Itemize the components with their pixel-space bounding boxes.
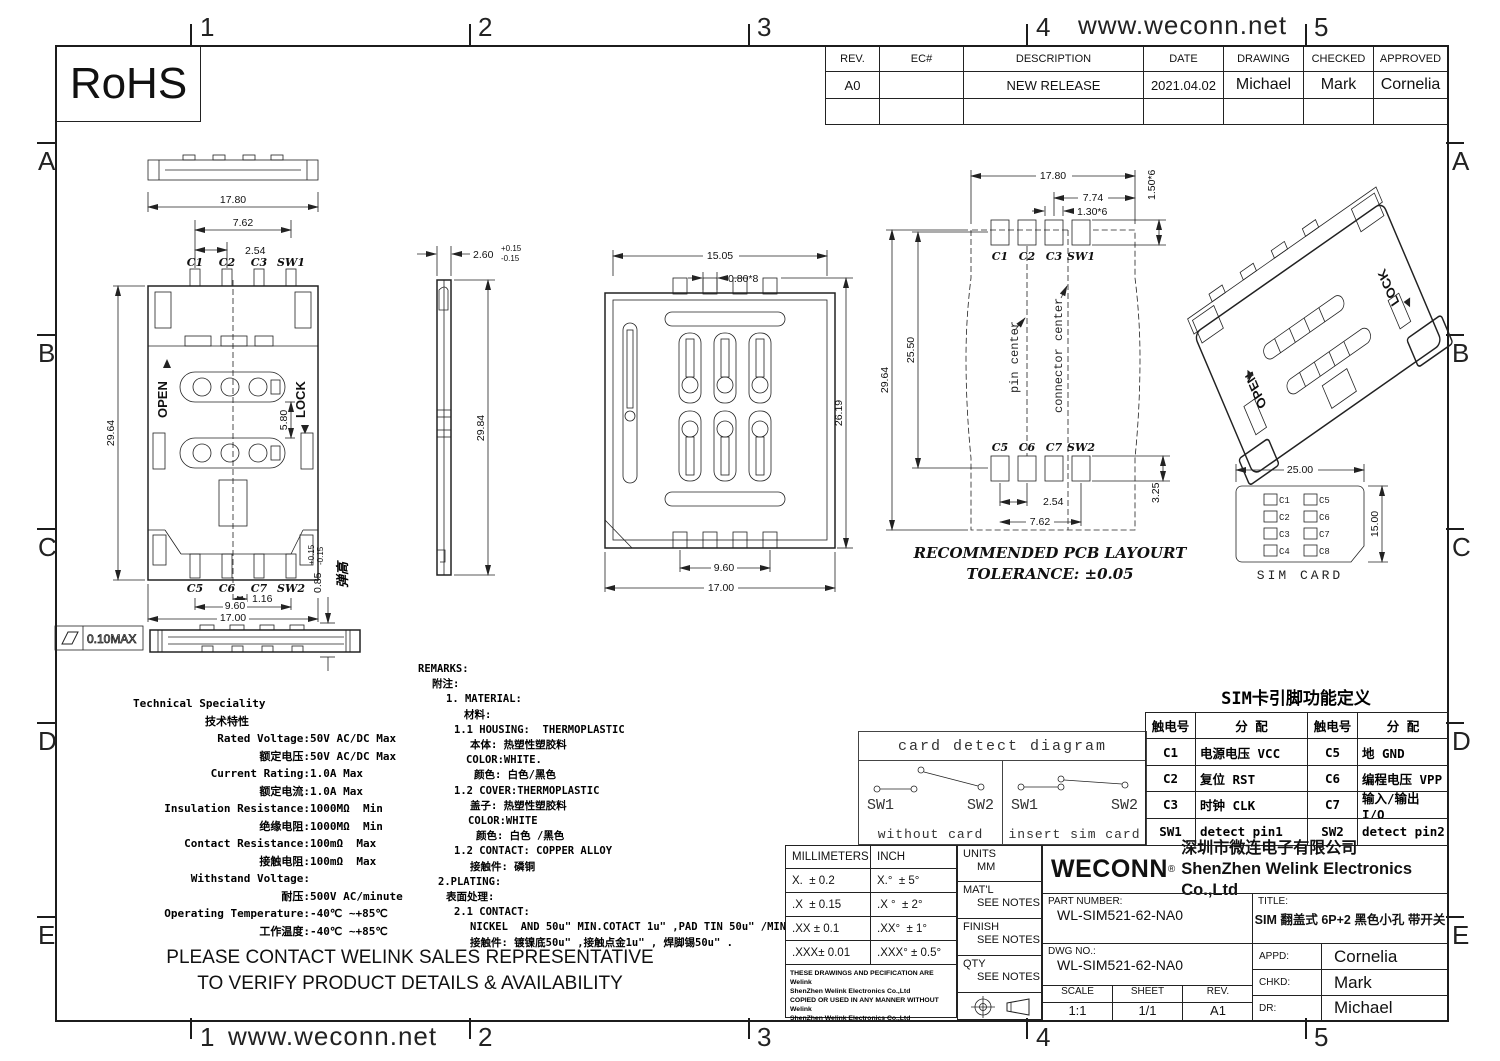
- tick: [1026, 1018, 1028, 1039]
- weconn-url-top: www.weconn.net: [1078, 10, 1287, 41]
- rev-cell: Mark: [1304, 72, 1374, 99]
- spring-tol-plus: +0.15: [307, 544, 316, 565]
- pad-label: C7: [1319, 530, 1330, 540]
- pin-cell: C6: [1308, 766, 1358, 792]
- pin-center-label: pin center: [1008, 321, 1022, 393]
- plan-body: [148, 269, 318, 590]
- weconn-logo: WECONN: [1051, 855, 1168, 884]
- tech-label: 耐压:: [125, 888, 310, 906]
- tech-value: 50V AC/DC Max: [310, 730, 396, 748]
- tick: [1446, 528, 1464, 530]
- pad-label: C8: [1319, 547, 1330, 557]
- sw1-label: SW1: [1011, 797, 1038, 814]
- finish-label: FINISH: [963, 921, 1041, 933]
- tol-cell: .XX ± 0.1: [785, 917, 870, 941]
- rev-h: APPROVED: [1374, 47, 1447, 72]
- simcard-caption: SIM CARD: [1257, 568, 1343, 583]
- pad-label: C2: [1279, 513, 1290, 523]
- tol-cell: .XX° ± 1°: [870, 917, 957, 941]
- tick: [37, 528, 55, 530]
- tick: [469, 24, 471, 45]
- company-block: WECONN ® 深圳市微连电子有限公司 ShenZhen Welink Ele…: [1042, 845, 1447, 893]
- rev-cell: A0: [826, 72, 880, 99]
- switch-open-icon: [859, 761, 1002, 797]
- dr-label: DR:: [1253, 996, 1322, 1020]
- remark-line: NICKEL AND 50u" MIN.COTACT 1u" ,PAD TIN …: [418, 920, 718, 935]
- tech-label: Insulation Resistance:: [125, 800, 310, 818]
- dim: 7.74: [1083, 192, 1104, 204]
- bottom-body: [605, 278, 835, 548]
- tech-value: 1000MΩ Min: [310, 800, 383, 818]
- units-column: UNITS MM MAT'L SEE NOTES FINISH SEE NOTE…: [957, 845, 1042, 1020]
- rev-h: CHECKED: [1304, 47, 1374, 72]
- pad-label: C3: [1046, 250, 1063, 263]
- pin-cell: 编程电压 VPP: [1358, 766, 1448, 792]
- tech-value: -40℃ ~+85℃: [310, 923, 388, 941]
- lock-label: LOCK: [293, 381, 308, 418]
- tech-label: Rated Voltage:: [125, 730, 310, 748]
- drawing-sheet: 1 2 3 4 5 www.weconn.net 1 2 3 4 5 www.w…: [0, 0, 1500, 1061]
- tick: [1446, 916, 1464, 918]
- grid-col-3: 3: [757, 12, 771, 43]
- tol-cell: .X ° ± 2°: [870, 893, 957, 917]
- profile-body: [150, 625, 360, 652]
- view-pcb: C1 C2 C3 SW1 C5 C6 C7 SW2 pin center con…: [878, 158, 1183, 583]
- scale-label: SCALE: [1043, 986, 1113, 1002]
- legal-line: THESE DRAWINGS AND PECIFICATION ARE Weli…: [790, 969, 954, 987]
- grid-col-5: 5: [1314, 12, 1328, 43]
- pin-function-table: 触电号 分 配 触电号 分 配 C1 电源电压 VCC C5 地 GND C2 …: [1145, 712, 1449, 846]
- ssr-values: 1:1 1/1 A1: [1042, 1002, 1252, 1020]
- dim: 1.30*6: [1077, 206, 1108, 218]
- grid-col-1b: 1: [200, 1022, 214, 1053]
- remark-line: COLOR:WHITE: [418, 814, 718, 829]
- tick: [37, 722, 55, 724]
- pcb-center-labels: pin center connector center: [1008, 286, 1067, 413]
- tol-minus: -0.15: [501, 254, 520, 263]
- simcard-dims: 25.00 15.00: [1236, 463, 1388, 562]
- tol-cell: .X ± 0.15: [785, 893, 870, 917]
- rev-h: DRAWING: [1224, 47, 1304, 72]
- grid-col-3b: 3: [757, 1022, 771, 1053]
- appd-value: Cornelia: [1322, 947, 1397, 967]
- tol-h: INCH: [870, 845, 957, 869]
- sw1-label: SW1: [867, 797, 894, 814]
- remark-line: 表面处理:: [418, 890, 718, 905]
- pin-label: C3: [251, 256, 268, 269]
- view-profile: 0.10MAX 0.85 +0.15 -0.15 弹高: [50, 553, 370, 673]
- finish-value: SEE NOTES: [963, 933, 1041, 946]
- pin-cell: C3: [1146, 792, 1196, 818]
- tech-value: 100mΩ Max: [310, 835, 376, 853]
- appd-label: APPD:: [1253, 944, 1322, 969]
- card-detect-title: card detect diagram: [859, 732, 1146, 761]
- units-label: UNITS: [963, 848, 1041, 860]
- tech-value: 100mΩ Max: [310, 853, 376, 871]
- bottom-dims-top: 15.05 0.80*8: [613, 249, 827, 290]
- remark-line: 材料:: [418, 708, 718, 723]
- pcb-pads-top: C1 C2 C3 SW1: [991, 220, 1095, 263]
- pin-cell: 电源电压 VCC: [1196, 739, 1308, 765]
- rev-cell: Cornelia: [1374, 72, 1447, 99]
- plan-top-strip: [148, 155, 318, 180]
- dwg-no-label: DWG NO.:: [1043, 944, 1252, 957]
- tech-label: Operating Temperature:: [125, 905, 310, 923]
- pad-label: C3: [1279, 530, 1290, 540]
- view-side: 2.60 +0.15 -0.15 29.84: [400, 218, 560, 593]
- view-simcard: 25.00 15.00 C1 C2 C3 C4 C5 C6 C7 C8 SIM …: [1212, 448, 1407, 583]
- tech-label: Current Rating:: [125, 765, 310, 783]
- view-isometric: OPEN LOCK: [1160, 138, 1450, 438]
- grid-row-C2: C: [1452, 532, 1471, 563]
- pad-label: SW1: [1067, 250, 1095, 263]
- grid-row-A2: A: [1452, 146, 1469, 177]
- pin-cell: C1: [1146, 739, 1196, 765]
- card-detect-without: SW1SW2 without card: [859, 761, 1003, 844]
- bottom-dim-length: 26.19: [781, 278, 853, 548]
- pin-table-title: SIM卡引脚功能定义: [1145, 684, 1447, 709]
- tolerance-table: MILLIMETERS INCH X. ± 0.2 X.° ± 5° .X ± …: [785, 845, 957, 965]
- dim: 5.80: [278, 410, 290, 431]
- tech-label: 额定电流:: [125, 783, 310, 801]
- dim: 25.00: [1287, 464, 1313, 476]
- tick: [37, 916, 55, 918]
- pad-label: C6: [1019, 441, 1036, 454]
- dim: 29.64: [105, 420, 117, 446]
- plan-dim-height: 29.64: [105, 286, 145, 580]
- tick: [190, 24, 192, 45]
- pcb-pads-bottom: C5 C6 C7 SW2: [991, 441, 1095, 481]
- dim: 25.50: [905, 337, 917, 363]
- chkd-row: CHKD: Mark: [1252, 969, 1447, 995]
- title-cell: TITLE: SIM 翻盖式 6P+2 黑色小孔 带开关: [1252, 893, 1447, 943]
- pin-label: C1: [187, 256, 203, 269]
- legal-line: ShenZhen Welink Electronics Co.,Ltd: [790, 1014, 954, 1023]
- revision-table: REV. EC# DESCRIPTION DATE DRAWING CHECKE…: [825, 47, 1447, 125]
- part-number-cell: PART NUMBER: WL-SIM521-62-NA0: [1042, 893, 1252, 943]
- dr-row: DR: Michael: [1252, 995, 1447, 1020]
- pin-cell: 复位 RST: [1196, 766, 1308, 792]
- pad-label: C1: [1279, 496, 1290, 506]
- grid-col-2b: 2: [478, 1022, 492, 1053]
- open-label: OPEN: [155, 381, 170, 418]
- matl-cell: MAT'L SEE NOTES: [957, 882, 1042, 919]
- qty-cell: QTY SEE NOTES: [957, 956, 1042, 993]
- rev-label: REV.: [1183, 986, 1253, 1002]
- tech-label: Contact Resistance:: [125, 835, 310, 853]
- remarks-block: REMARKS: 附注: 1. MATERIAL: 材料: 1.1 HOUSIN…: [418, 662, 718, 951]
- contact-line-1: PLEASE CONTACT WELINK SALES REPRESENTATI…: [160, 945, 660, 971]
- pad-label: SW2: [1067, 441, 1095, 454]
- grid-row-B2: B: [1452, 338, 1469, 369]
- rev-cell: [880, 72, 964, 99]
- pcb-dims: 17.80 7.74 1.30*6 1.50*6 29.64 25.50 2.5…: [879, 169, 1170, 530]
- legal-line: ShenZhen Welink Electronics Co.,Ltd: [790, 987, 954, 996]
- pin-label: SW1: [277, 256, 305, 269]
- pin-h: 分 配: [1196, 713, 1308, 739]
- dim: 17.00: [708, 582, 734, 594]
- units-value: MM: [963, 860, 1041, 873]
- pin-cell: C2: [1146, 766, 1196, 792]
- legal-text: THESE DRAWINGS AND PECIFICATION ARE Weli…: [785, 965, 957, 1018]
- third-angle-projection-icon: [967, 996, 1037, 1018]
- sw2-label: SW2: [1111, 797, 1138, 814]
- side-body: [437, 280, 451, 575]
- tol-h: MILLIMETERS: [785, 845, 870, 869]
- tick: [1026, 24, 1028, 45]
- connector-center-label: connector center: [1052, 298, 1066, 413]
- dim: 0.80*8: [728, 273, 759, 285]
- company-name-cn: 深圳市微连电子有限公司: [1181, 838, 1447, 859]
- pad-label: C5: [992, 441, 1008, 454]
- spring-label: 弹高: [335, 560, 351, 588]
- pcb-note-2: TOLERANCE: ±0.05: [966, 565, 1133, 583]
- units-cell: UNITS MM: [957, 845, 1042, 882]
- tech-value: 500V AC/minute: [310, 888, 403, 906]
- switch-closed-icon: [1003, 761, 1147, 797]
- open-arrow-icon: [163, 359, 171, 368]
- tech-value: 1.0A Max: [310, 765, 363, 783]
- tick: [748, 1018, 750, 1039]
- dim: 7.62: [233, 217, 254, 229]
- contact-line-2: TO VERIFY PRODUCT DETAILS & AVAILABILITY: [160, 971, 660, 997]
- remark-line: 1.2 COVER:THERMOPLASTIC: [418, 784, 718, 799]
- plan-pin-labels-top: C1 C2 C3 SW1: [187, 256, 305, 269]
- dim: 15.00: [1369, 511, 1381, 537]
- tech-label: Withstand Voltage:: [125, 870, 310, 888]
- pin-h: 分 配: [1358, 713, 1448, 739]
- sw2-label: SW2: [967, 797, 994, 814]
- rev-cell: 2021.04.02: [1144, 72, 1224, 99]
- grid-row-B: B: [38, 338, 55, 369]
- grid-col-2: 2: [478, 12, 492, 43]
- remark-line: 颜色: 白色/黑色: [418, 768, 718, 783]
- chkd-label: CHKD:: [1253, 970, 1322, 995]
- rev-h: DESCRIPTION: [964, 47, 1144, 72]
- rev-h: EC#: [880, 47, 964, 72]
- scale-value: 1:1: [1043, 1003, 1113, 1020]
- tick: [748, 24, 750, 45]
- dim: 15.05: [707, 250, 733, 262]
- dim: 7.62: [1030, 516, 1051, 528]
- remark-line: 2.1 CONTACT:: [418, 905, 718, 920]
- tech-value: 50V AC/DC Max: [310, 748, 396, 766]
- dim: 2.54: [1043, 496, 1064, 508]
- tick: [1305, 24, 1307, 45]
- grid-row-E: E: [38, 920, 55, 951]
- spring-height: 0.85: [312, 572, 324, 593]
- registered-icon: ®: [1168, 864, 1175, 875]
- side-dim-thickness: 2.60 +0.15 -0.15: [417, 244, 522, 276]
- dim: 9.60: [714, 562, 735, 574]
- dwg-no-cell: DWG NO.: WL-SIM521-62-NA0: [1042, 943, 1252, 985]
- tick: [37, 334, 55, 336]
- simcard-outline: [1236, 486, 1364, 562]
- rev-h: REV.: [826, 47, 880, 72]
- dim: 1.50*6: [1146, 169, 1158, 200]
- pad-label: C6: [1319, 513, 1330, 523]
- bottom-dims-bottom: 9.60 17.00: [605, 550, 835, 594]
- pad-label: C1: [992, 250, 1008, 263]
- remark-line: REMARKS:: [418, 662, 718, 677]
- pin-h: 触电号: [1146, 713, 1196, 739]
- pad-label: C5: [1319, 496, 1330, 506]
- chkd-value: Mark: [1322, 973, 1372, 993]
- card-detect-insert: SW1SW2 insert sim card: [1003, 761, 1146, 844]
- pin-cell: 地 GND: [1358, 739, 1448, 765]
- dim: 26.19: [833, 400, 845, 426]
- grid-col-4: 4: [1036, 12, 1050, 43]
- pin-cell: 输入/输出 I/O: [1358, 792, 1448, 818]
- sheet-label: SHEET: [1113, 986, 1183, 1002]
- legal-line: COPIED OR USED IN ANY MANNER WITHOUT Wel…: [790, 996, 954, 1014]
- pcb-note-1: RECOMMENDED PCB LAYOURT: [913, 544, 1189, 562]
- tol-cell: X.° ± 5°: [870, 869, 957, 893]
- dim: 17.80: [1040, 170, 1066, 182]
- rev-value: A1: [1183, 1003, 1253, 1020]
- pcb-caption: RECOMMENDED PCB LAYOURT TOLERANCE: ±0.05: [913, 544, 1189, 583]
- remark-line: 附注:: [418, 677, 718, 692]
- technical-speciality: Technical Speciality 技术特性 Rated Voltage:…: [125, 695, 445, 940]
- pad-label: C4: [1279, 547, 1290, 557]
- grid-col-5b: 5: [1314, 1022, 1328, 1053]
- dim: 29.64: [879, 367, 891, 393]
- contact-note: PLEASE CONTACT WELINK SALES REPRESENTATI…: [160, 945, 660, 997]
- tol-cell: X. ± 0.2: [785, 869, 870, 893]
- tech-label: 接触电阻:: [125, 853, 310, 871]
- pin-cell: C5: [1308, 739, 1358, 765]
- grid-row-A: A: [38, 146, 55, 177]
- tech-label: 额定电压:: [125, 748, 310, 766]
- grid-row-E2: E: [1452, 920, 1469, 951]
- dr-value: Michael: [1322, 998, 1393, 1018]
- rev-h: DATE: [1144, 47, 1224, 72]
- remark-line: COLOR:WHITE.: [418, 753, 718, 768]
- grid-row-D: D: [38, 726, 57, 757]
- appd-row: APPD: Cornelia: [1252, 943, 1447, 969]
- rohs-label: RoHS: [70, 59, 187, 109]
- qty-value: SEE NOTES: [963, 970, 1041, 983]
- remark-line: 1.1 HOUSING: THERMOPLASTIC: [418, 723, 718, 738]
- title-value: SIM 翻盖式 6P+2 黑色小孔 带开关: [1253, 907, 1447, 928]
- finish-cell: FINISH SEE NOTES: [957, 919, 1042, 956]
- title-label: TITLE:: [1253, 894, 1447, 907]
- remark-line: 1.2 CONTACT: COPPER ALLOY: [418, 844, 718, 859]
- flatness-callout: 0.10MAX: [55, 626, 143, 650]
- dim: 29.84: [475, 415, 487, 441]
- rev-cell: Michael: [1224, 72, 1304, 99]
- dim: 2.60: [473, 249, 494, 261]
- tech-value: 1.0A Max: [310, 783, 363, 801]
- flatness-value: 0.10MAX: [87, 632, 136, 646]
- tech-title-cn: 技术特性: [125, 713, 445, 731]
- remark-line: 1. MATERIAL:: [418, 692, 718, 707]
- tick: [37, 142, 55, 144]
- pad-label: C7: [1046, 441, 1063, 454]
- dwg-no-value: WL-SIM521-62-NA0: [1043, 957, 1252, 973]
- tech-label: 工作温度:: [125, 923, 310, 941]
- view-bottom: 15.05 0.80*8 2: [585, 228, 870, 598]
- pin-h: 触电号: [1308, 713, 1358, 739]
- tol-cell: .XXX± 0.01: [785, 941, 870, 965]
- card-detect-diagram: card detect diagram SW1SW2 without card: [858, 731, 1147, 845]
- iso-open-label: OPEN: [1242, 369, 1269, 412]
- remark-line: 接触件: 磷铜: [418, 860, 718, 875]
- pin-cell: 时钟 CLK: [1196, 792, 1308, 818]
- matl-label: MAT'L: [963, 884, 1041, 896]
- grid-col-4b: 4: [1036, 1022, 1050, 1053]
- tech-value: -40℃ ~+85℃: [310, 905, 388, 923]
- projection-cell: [957, 993, 1042, 1020]
- matl-value: SEE NOTES: [963, 896, 1041, 909]
- rohs-badge: RoHS: [57, 47, 201, 122]
- rev-cell: NEW RELEASE: [964, 72, 1144, 99]
- remark-line: 2.PLATING:: [418, 875, 718, 890]
- grid-row-D2: D: [1452, 726, 1471, 757]
- tick: [469, 1018, 471, 1039]
- sheet-value: 1/1: [1113, 1003, 1183, 1020]
- weconn-url-bottom: www.weconn.net: [228, 1021, 437, 1052]
- flatness-icon: [62, 632, 78, 644]
- tol-cell: .XXX° ± 0.5°: [870, 941, 957, 965]
- remark-line: 本体: 热塑性塑胶料: [418, 738, 718, 753]
- dim: 17.80: [220, 194, 246, 206]
- simcard-pads: C1 C2 C3 C4 C5 C6 C7 C8: [1264, 494, 1330, 557]
- side-dim-length: 29.84: [454, 280, 495, 575]
- pin-label: C2: [219, 256, 236, 269]
- pin-cell: C7: [1308, 792, 1358, 818]
- part-number-value: WL-SIM521-62-NA0: [1043, 907, 1252, 923]
- spring-tol-minus: -0.15: [316, 546, 325, 565]
- dim: 3.25: [1150, 482, 1162, 503]
- pad-label: C2: [1019, 250, 1036, 263]
- ssr-header: SCALE SHEET REV.: [1042, 985, 1252, 1002]
- tech-label: 绝缘电阻:: [125, 818, 310, 836]
- tech-value: 1000MΩ Min: [310, 818, 383, 836]
- part-number-label: PART NUMBER:: [1043, 894, 1252, 907]
- tick: [1305, 1018, 1307, 1039]
- without-card-caption: without card: [859, 827, 1002, 842]
- tick: [190, 1018, 192, 1039]
- tech-title-en: Technical Speciality: [125, 695, 445, 713]
- insert-card-caption: insert sim card: [1003, 827, 1146, 842]
- grid-col-1: 1: [200, 12, 214, 43]
- qty-label: QTY: [963, 958, 1041, 970]
- remark-line: 颜色: 白色 /黑色: [418, 829, 718, 844]
- tol-plus: +0.15: [501, 244, 522, 253]
- iso-lock-label: LOCK: [1375, 266, 1402, 310]
- remark-line: 盖子: 热塑性塑胶料: [418, 799, 718, 814]
